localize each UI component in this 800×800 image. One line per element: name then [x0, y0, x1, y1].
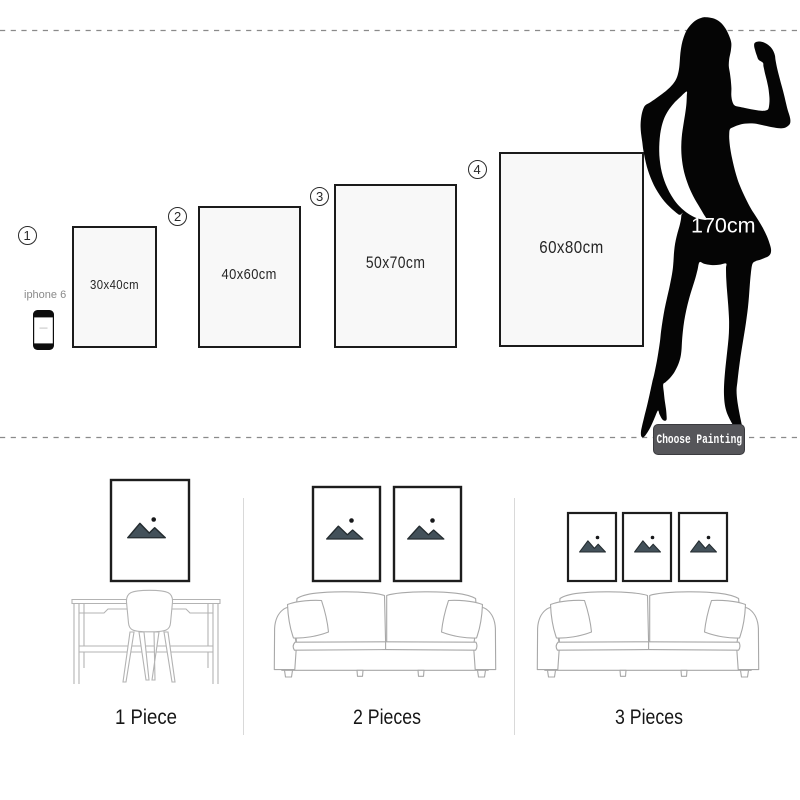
svg-text:2 Pieces: 2 Pieces [353, 706, 421, 729]
svg-text:170cm: 170cm [691, 214, 756, 238]
svg-text:3 Pieces: 3 Pieces [615, 706, 683, 729]
svg-text:1 Piece: 1 Piece [115, 706, 177, 729]
